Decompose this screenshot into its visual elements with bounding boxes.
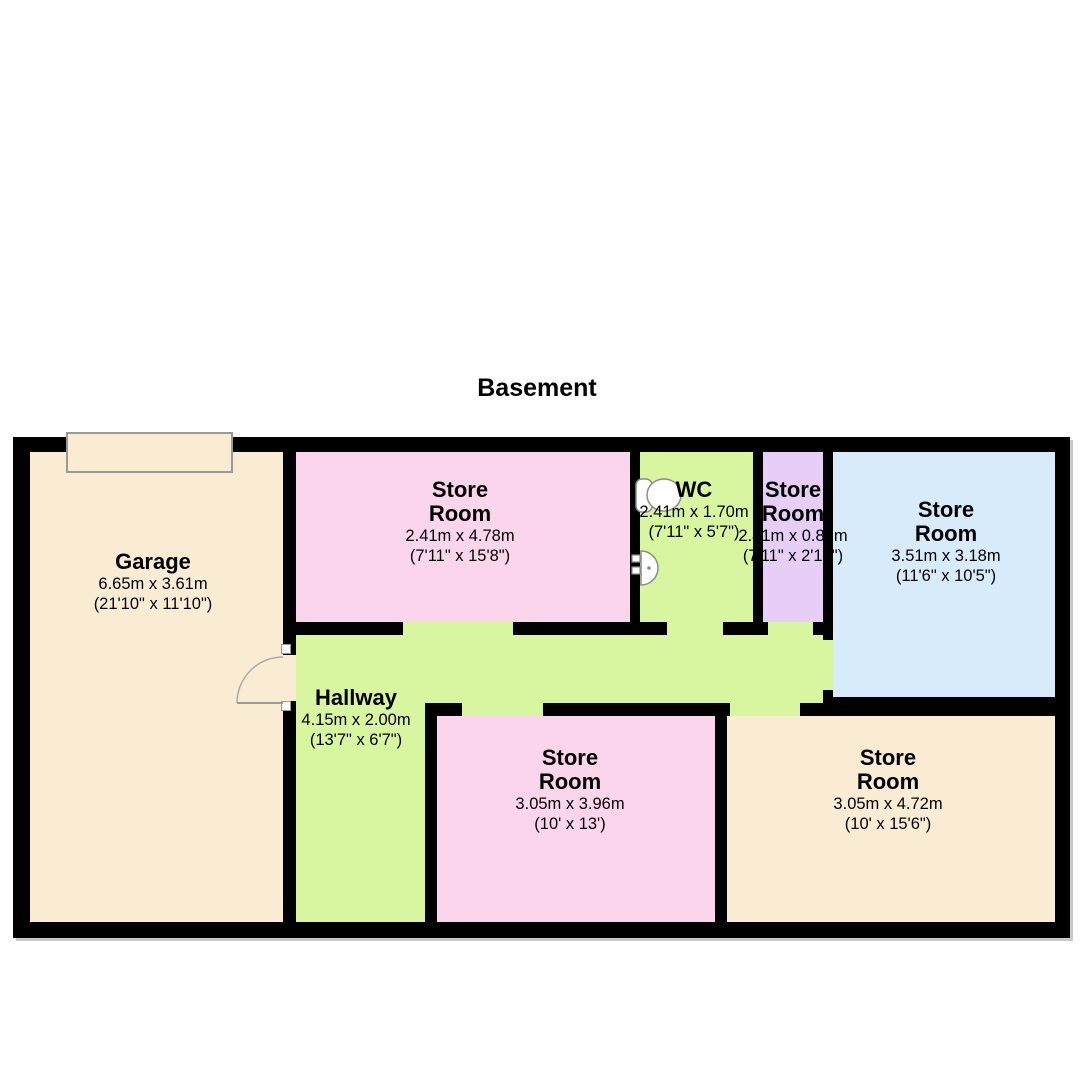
room-dim-imperial: (7'11" x 2'10") — [738, 546, 847, 566]
room-name: Garage — [94, 550, 213, 574]
label-garage: Garage 6.65m x 3.61m (21'10" x 11'10") — [94, 550, 213, 614]
floorplan-canvas: Basement Garage — [0, 0, 1080, 1080]
room-name: WC — [639, 478, 748, 502]
room-hallway-arm — [296, 635, 425, 922]
garage-door-icon — [66, 432, 233, 473]
label-store-bottom-pink: Store Room 3.05m x 3.96m (10' x 13') — [515, 746, 624, 834]
doorway-store-bottom-cream — [730, 703, 800, 716]
room-garage — [30, 452, 283, 922]
label-hallway: Hallway 4.15m x 2.00m (13'7" x 6'7") — [301, 686, 410, 750]
room-name: Store Room — [833, 746, 942, 794]
door-jamb-bottom — [281, 701, 291, 711]
label-store-bottom-cream: Store Room 3.05m x 4.72m (10' x 15'6") — [833, 746, 942, 834]
room-name: Store Room — [738, 478, 847, 526]
room-dim-metric: 2.41m x 1.70m — [639, 502, 748, 522]
label-store-blue: Store Room 3.51m x 3.18m (11'6" x 10'5") — [891, 498, 1000, 586]
room-dim-imperial: (7'11" x 15'8") — [405, 546, 514, 566]
room-dim-metric: 3.51m x 3.18m — [891, 546, 1000, 566]
doorway-store-bottom-pink — [462, 703, 543, 716]
door-jamb-top — [281, 644, 291, 654]
doorway-store-top — [403, 622, 513, 635]
doorway-garage — [283, 655, 296, 701]
room-dim-metric: 3.05m x 3.96m — [515, 794, 624, 814]
room-dim-metric: 6.65m x 3.61m — [94, 574, 213, 594]
label-wc: WC 2.41m x 1.70m (7'11" x 5'7") — [639, 478, 748, 542]
doorway-store-small — [768, 622, 813, 635]
room-dim-metric: 4.15m x 2.00m — [301, 710, 410, 730]
room-dim-imperial: (10' x 15'6") — [833, 814, 942, 834]
room-dim-metric: 2.41m x 0.87m — [738, 526, 847, 546]
room-dim-imperial: (7'11" x 5'7") — [639, 522, 748, 542]
room-name: Store Room — [891, 498, 1000, 546]
room-dim-metric: 2.41m x 4.78m — [405, 526, 514, 546]
room-dim-imperial: (21'10" x 11'10") — [94, 594, 213, 614]
room-name: Hallway — [301, 686, 410, 710]
doorway-store-blue — [823, 640, 833, 690]
room-dim-metric: 3.05m x 4.72m — [833, 794, 942, 814]
label-store-small: Store Room 2.41m x 0.87m (7'11" x 2'10") — [738, 478, 847, 566]
room-dim-imperial: (13'7" x 6'7") — [301, 730, 410, 750]
floor-title: Basement — [477, 374, 597, 403]
room-name: Store Room — [515, 746, 624, 794]
label-store-top: Store Room 2.41m x 4.78m (7'11" x 15'8") — [405, 478, 514, 566]
room-name: Store Room — [405, 478, 514, 526]
doorway-wc — [667, 622, 723, 635]
room-dim-imperial: (11'6" x 10'5") — [891, 566, 1000, 586]
room-dim-imperial: (10' x 13') — [515, 814, 624, 834]
